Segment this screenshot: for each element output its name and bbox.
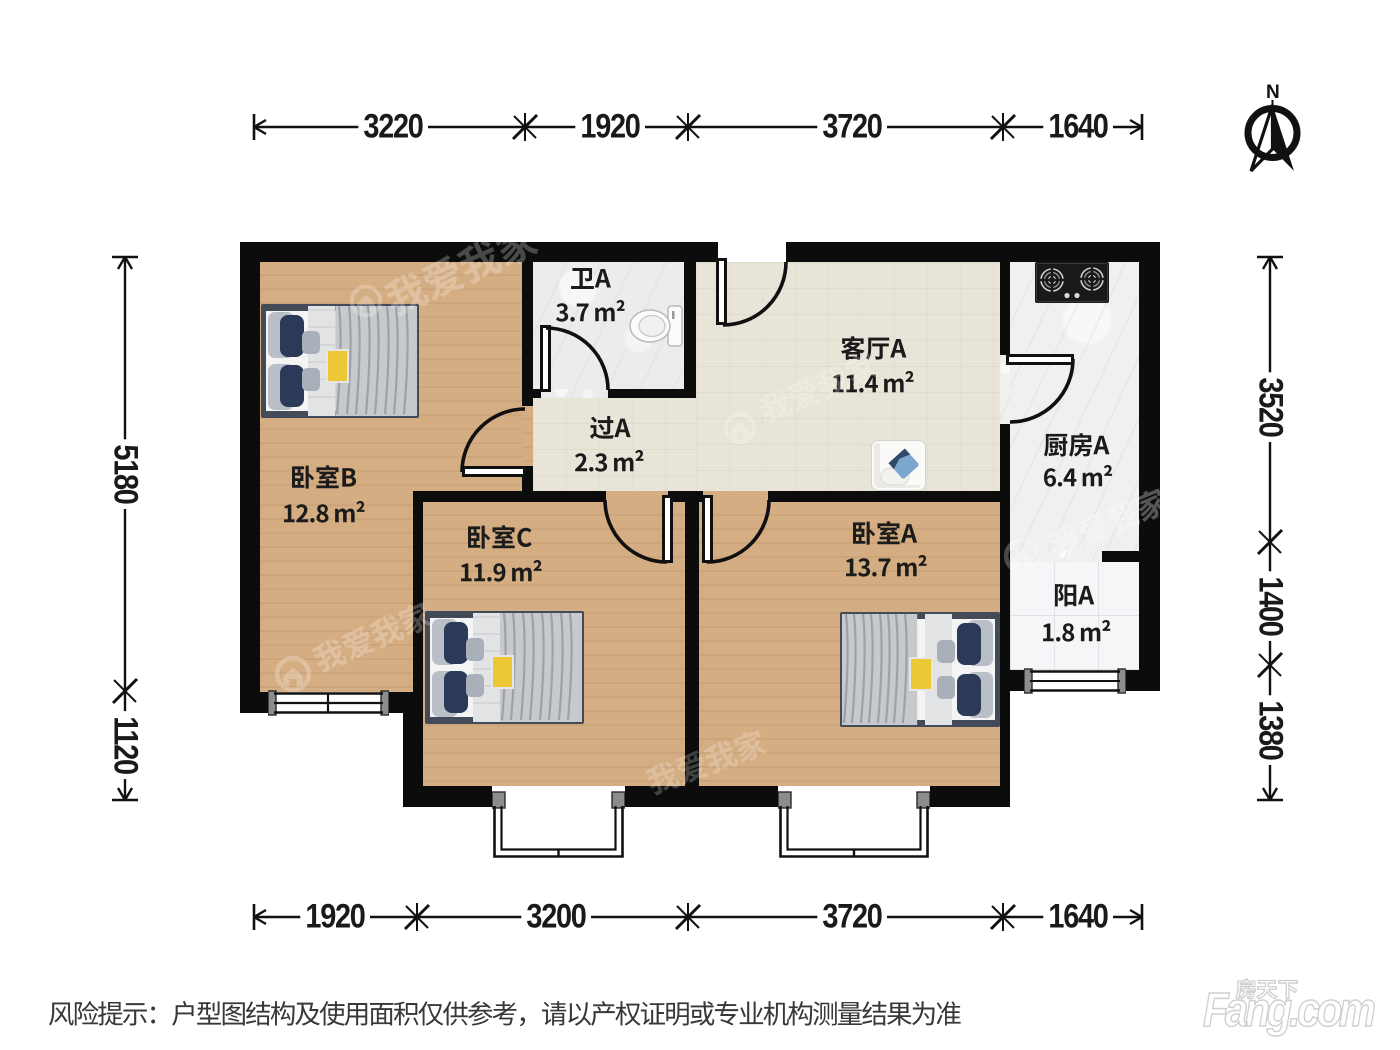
svg-text:N: N	[1266, 82, 1280, 103]
